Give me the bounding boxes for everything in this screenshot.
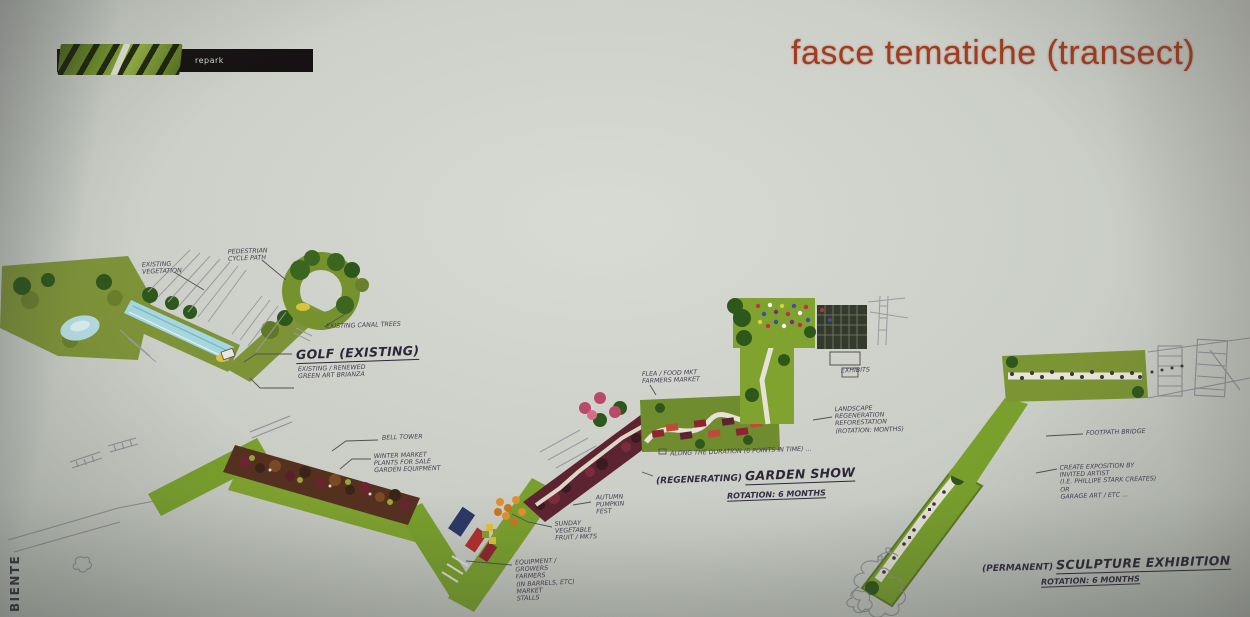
garden-show-note-exhibits: EXHIBITS [841, 366, 870, 374]
page-title: fasce tematiche (transect) [791, 34, 1195, 73]
logo-text: repark [195, 56, 224, 65]
golf-note-vegetation: EXISTING VEGETATION [142, 260, 182, 276]
market-note-autumn: AUTUMN PUMPKIN FEST [596, 494, 625, 517]
market-segment [8, 416, 558, 612]
golf-note-path: PEDESTRIAN CYCLE PATH [228, 247, 268, 263]
pencil-structures [1148, 338, 1250, 398]
planting-texture [535, 433, 641, 510]
golf-sublabel: EXISTING / RENEWED GREEN ART BRIANZA [298, 364, 366, 381]
sculpture-label-prefix: (PERMANENT) [982, 562, 1053, 574]
garden-show-note-flea: FLEA / FOOD MKT FARMERS MARKET [642, 369, 700, 385]
side-caption: BIENTE [8, 555, 22, 612]
market-note-growers: EQUIPMENT / GROWERS FARMERS (IN BARRELS,… [515, 556, 576, 602]
sculpture-segment [847, 338, 1250, 617]
sculpture-note-create: CREATE EXPOSITION BY INVITED ARTIST (I.E… [1059, 461, 1157, 501]
garden-show-note-landscape: LANDSCAPE REGENERATION REFORESTATION (RO… [835, 404, 905, 435]
logo-bar: repark [57, 49, 313, 72]
garden-show-label-prefix: (REGENERATING) [656, 473, 742, 486]
market-note-winter: WINTER MARKET PLANTS FOR SALE GARDEN EQU… [374, 451, 441, 475]
market-note-sunday: SUNDAY VEGETABLE FRUIT / MKTS [555, 519, 598, 542]
plan-layer: GOLF (EXISTING) EXISTING / RENEWED GREEN… [0, 0, 1250, 617]
repark-logo-icon [57, 44, 182, 75]
market-note-bell: BELL TOWER [382, 433, 423, 442]
slide: repark fasce tematiche (transect) BIENTE [0, 0, 1250, 617]
transect-drawing [0, 0, 1250, 617]
